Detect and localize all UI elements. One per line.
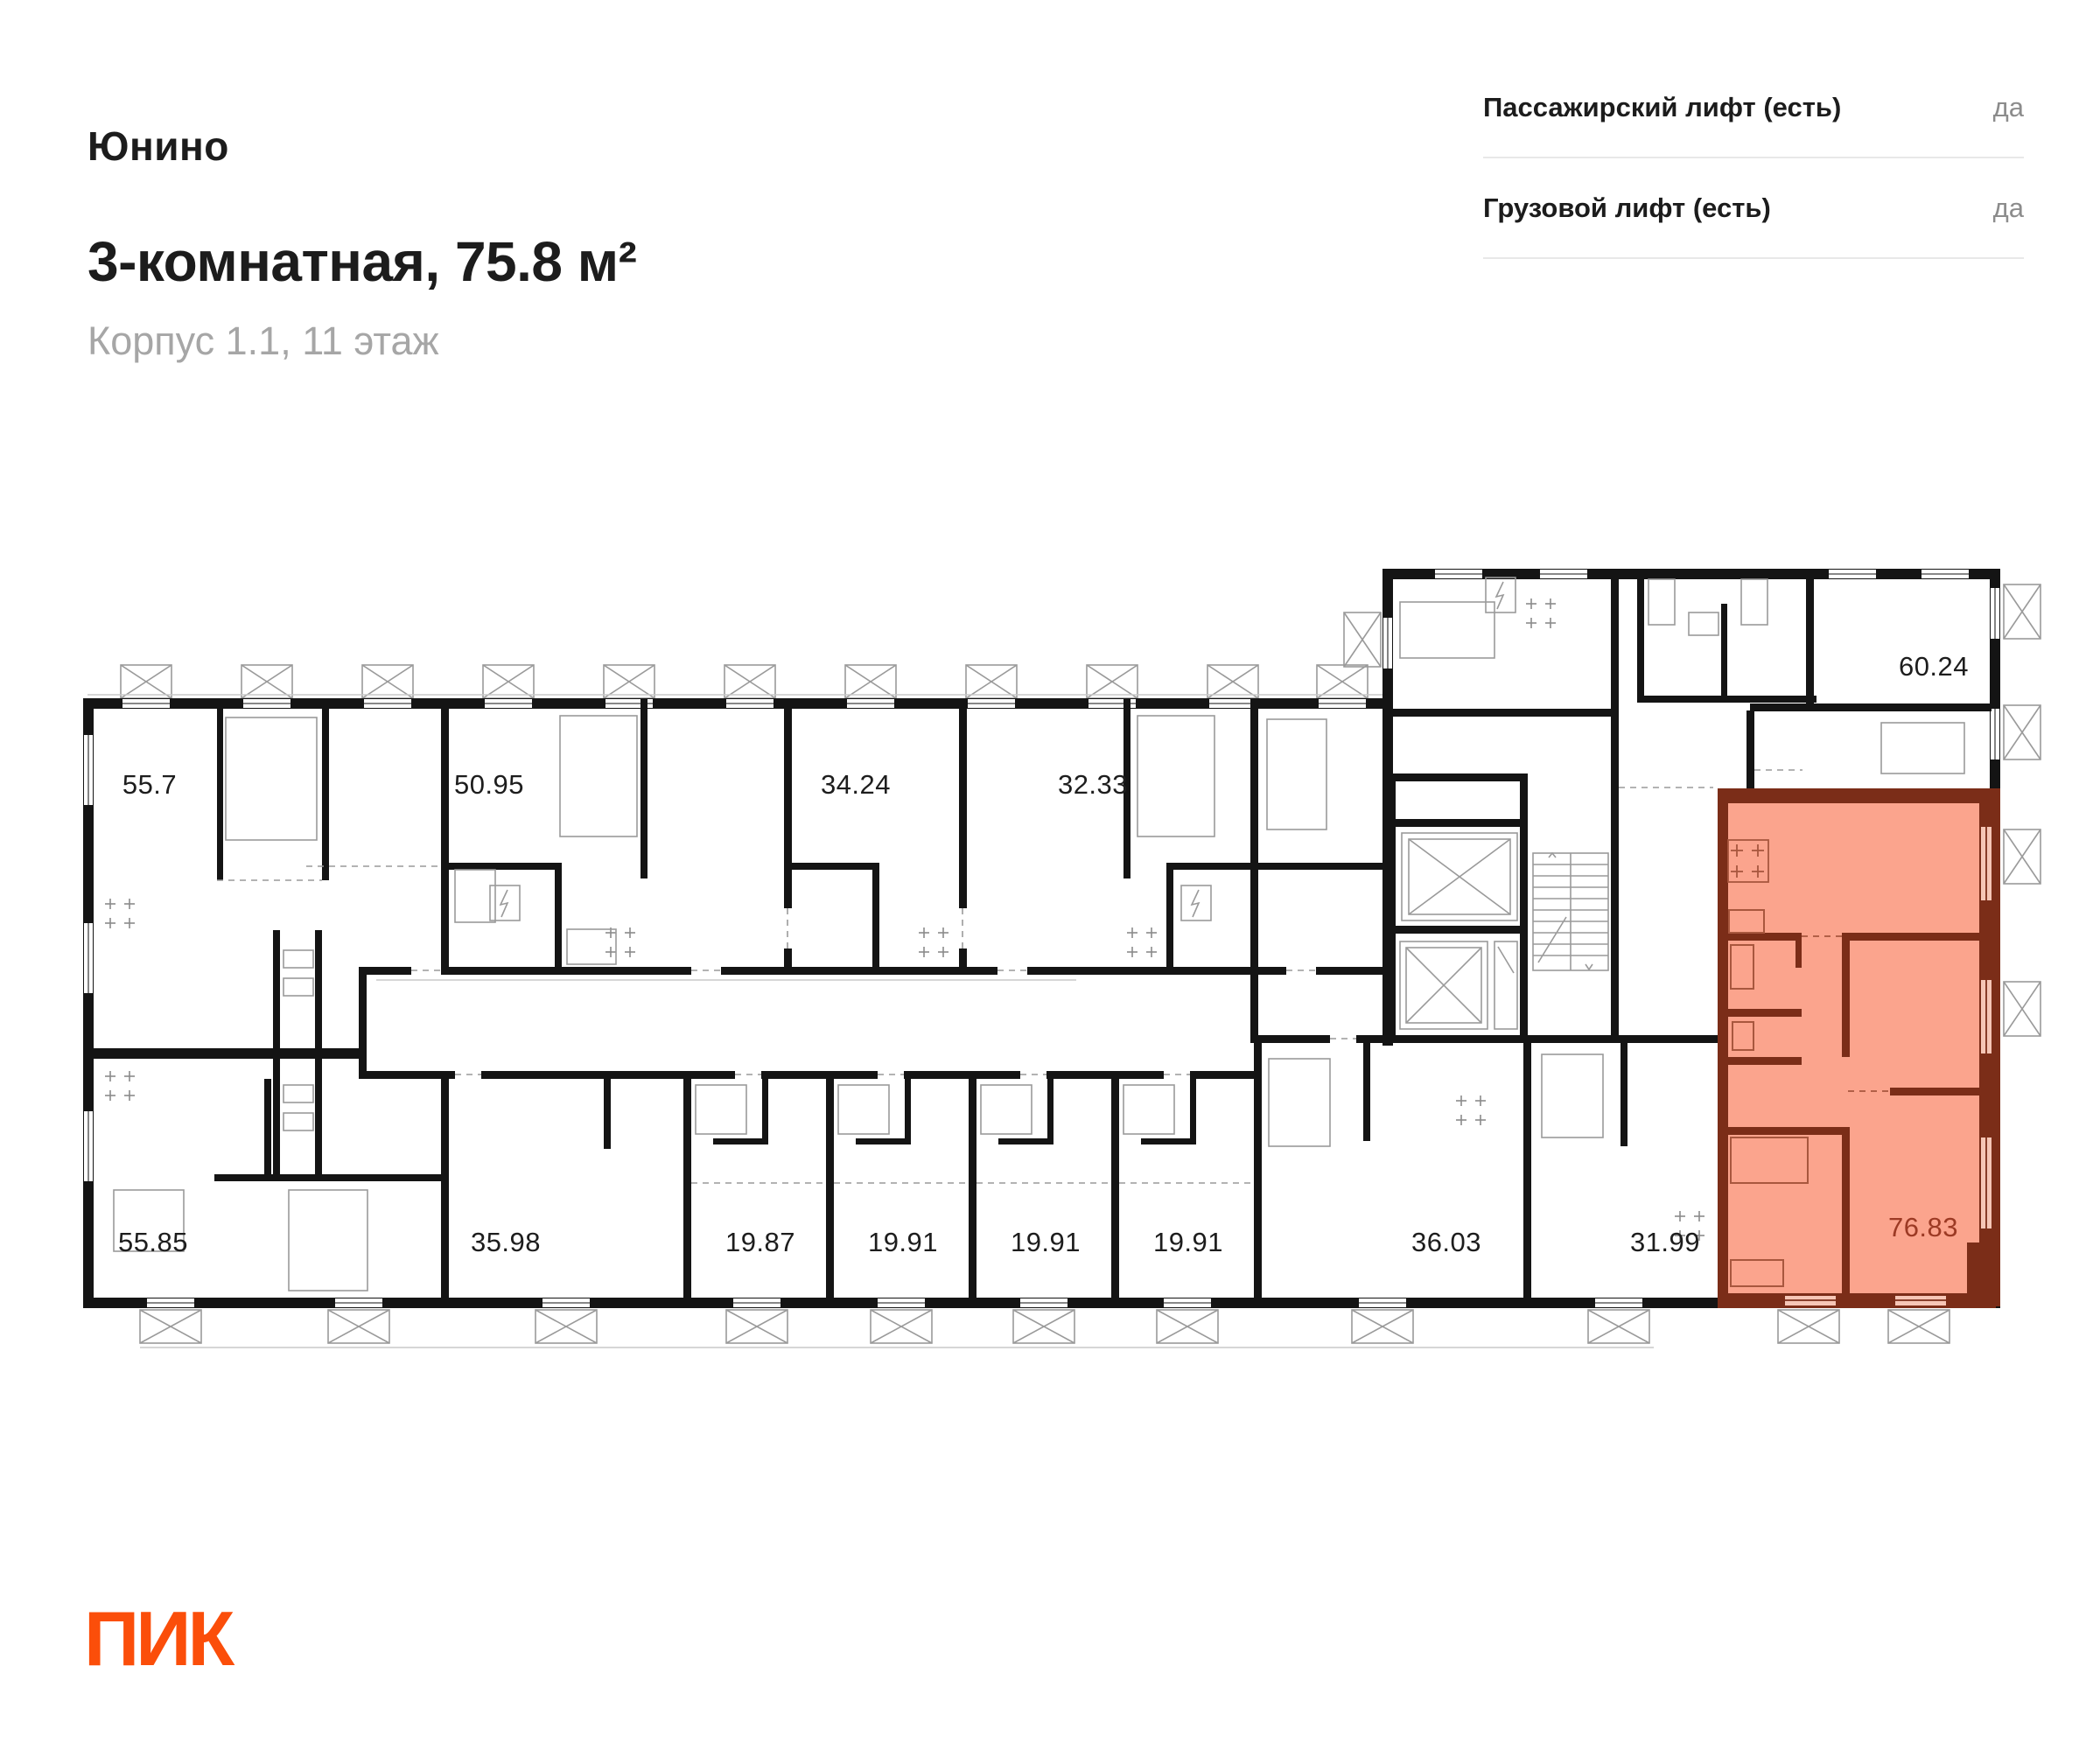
area-label: 19.87: [725, 1227, 795, 1257]
shaft-door: [1494, 941, 1517, 1029]
staircase-icon: [1533, 853, 1608, 970]
area-label: 55.7: [122, 769, 177, 800]
side-windows: [84, 588, 1999, 1181]
elevator-shaft-icon: [1402, 833, 1517, 920]
area-label: 31.99: [1630, 1227, 1700, 1257]
floor-plan: 55.750.9534.2432.3360.2455.8535.9819.871…: [0, 0, 2100, 1750]
area-label: 36.03: [1411, 1227, 1481, 1257]
area-label: 76.83: [1888, 1212, 1958, 1242]
area-label: 19.91: [1011, 1227, 1081, 1257]
area-label: 50.95: [454, 769, 524, 800]
elevator-shaft-icon: [1400, 941, 1487, 1029]
area-label: 32.33: [1058, 769, 1128, 800]
windows: [84, 570, 1999, 1307]
area-label: 55.85: [118, 1227, 188, 1257]
pik-logo[interactable]: ПИК: [84, 1594, 231, 1683]
area-label: 60.24: [1899, 651, 1969, 682]
area-labels: 55.750.9534.2432.3360.2455.8535.9819.871…: [118, 651, 1969, 1257]
area-label: 34.24: [821, 769, 891, 800]
area-label: 19.91: [868, 1227, 938, 1257]
elevator-core: [1388, 773, 1619, 1043]
interior-walls: [83, 569, 1991, 1298]
page: Юнино 3-комнатная, 75.8 м² Корпус 1.1, 1…: [0, 0, 2100, 1750]
area-label: 35.98: [471, 1227, 541, 1257]
area-label: 19.91: [1153, 1227, 1223, 1257]
